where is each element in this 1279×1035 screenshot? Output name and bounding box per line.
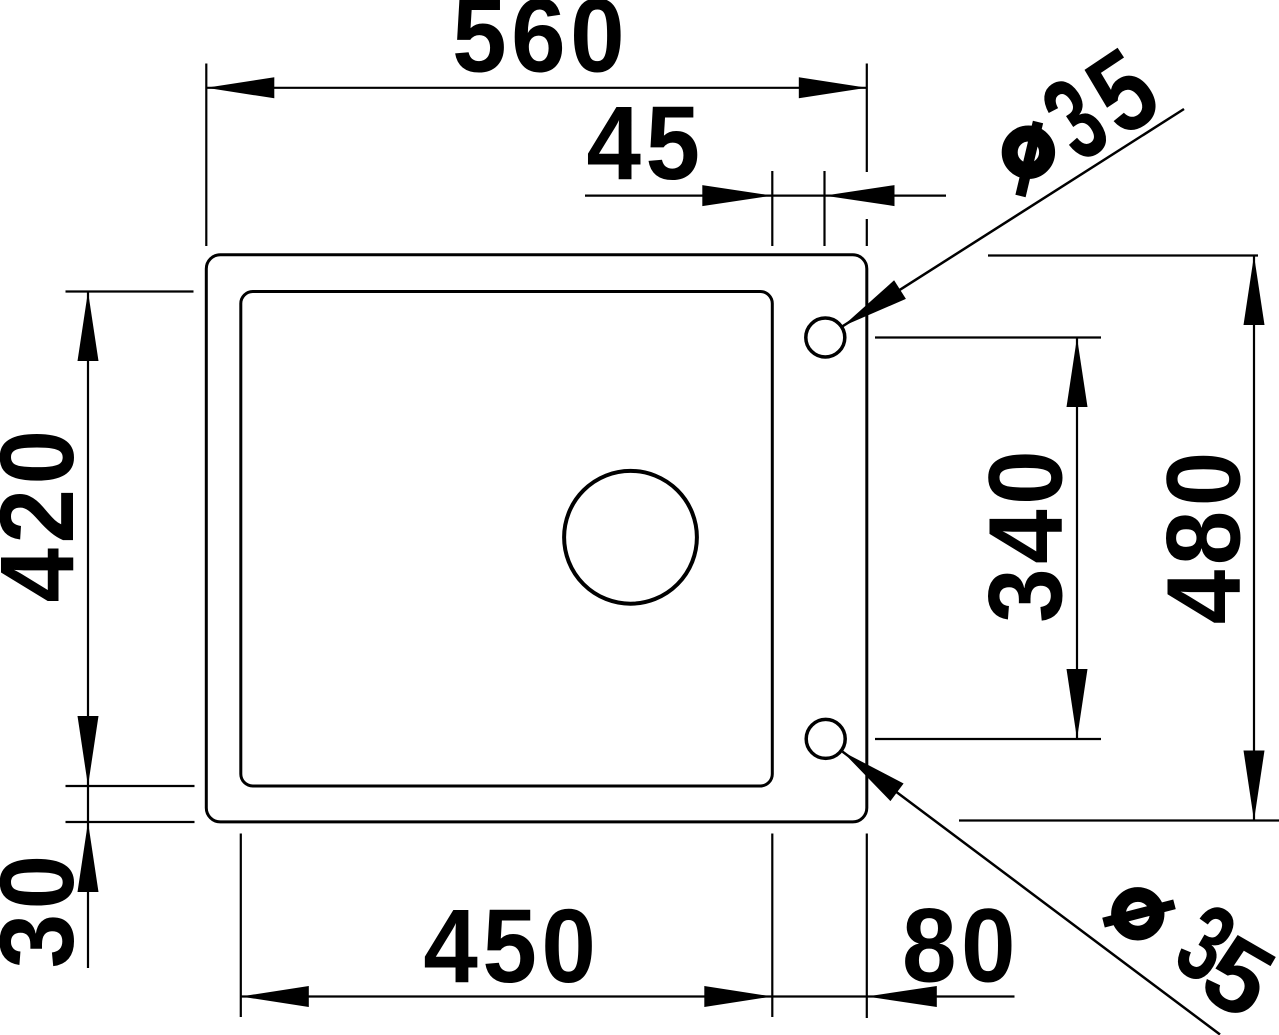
svg-text:450: 450	[423, 887, 600, 1005]
svg-text:560: 560	[452, 0, 629, 94]
svg-text:480: 480	[1144, 447, 1262, 624]
svg-text:30: 30	[0, 850, 96, 968]
svg-text:80: 80	[902, 886, 1020, 1004]
svg-text:420: 420	[0, 426, 96, 603]
svg-text:45: 45	[587, 84, 705, 202]
svg-text:340: 340	[966, 446, 1084, 623]
